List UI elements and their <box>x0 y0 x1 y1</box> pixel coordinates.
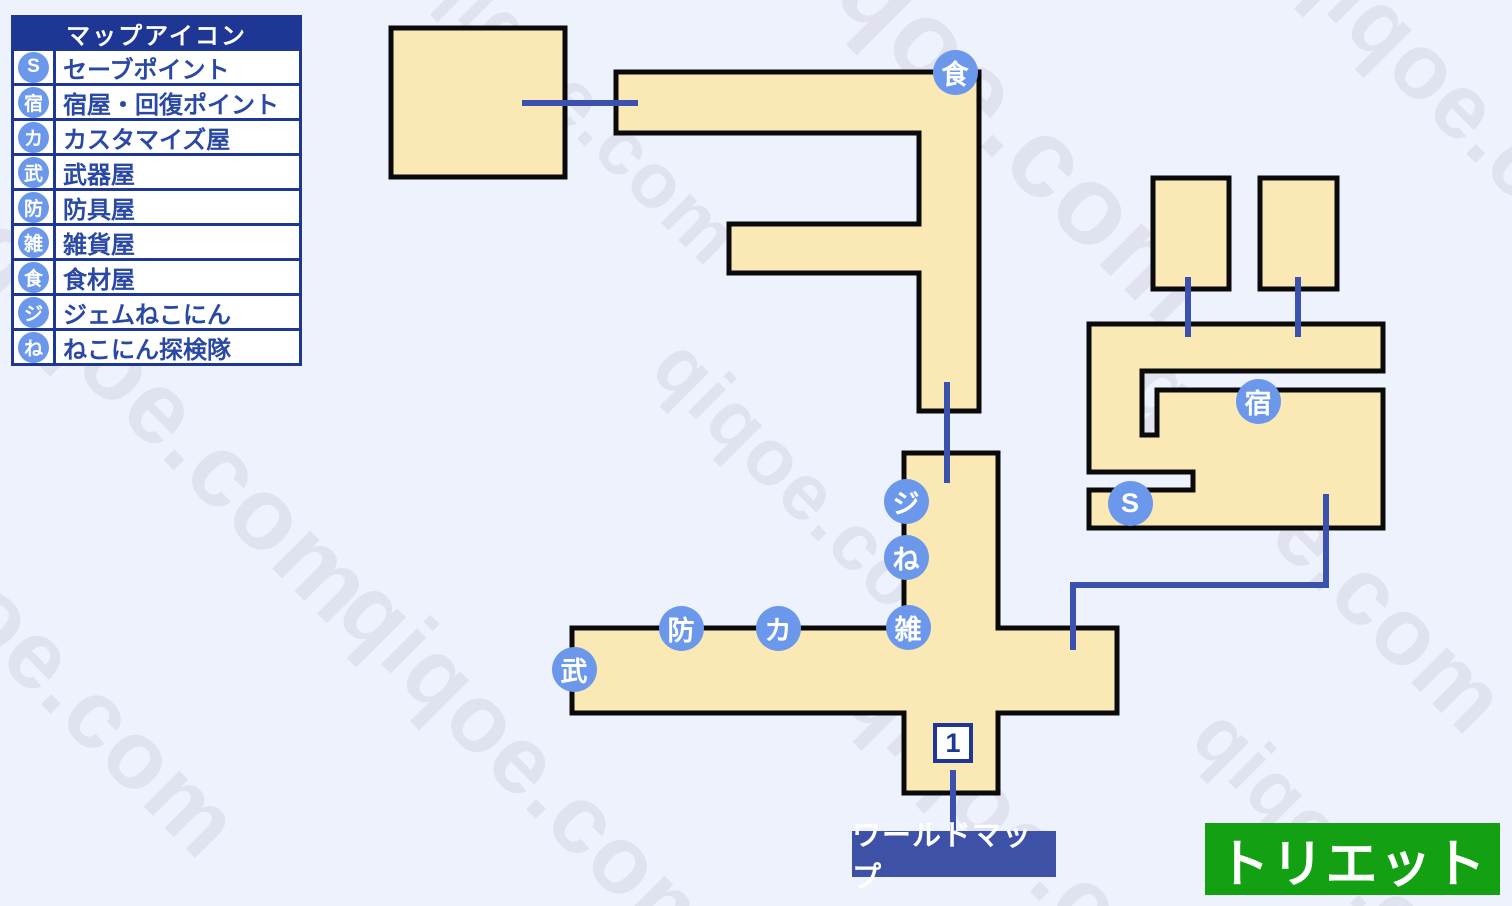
legend-row: ね ねこにん探検隊 <box>14 328 299 363</box>
legend-label: カスタマイズ屋 <box>56 121 299 153</box>
legend-row: 防 防具屋 <box>14 188 299 223</box>
map-marker-food-shop: 食 <box>933 50 978 95</box>
legend-row: 食 食材屋 <box>14 258 299 293</box>
legend-icon-cell: 防 <box>14 191 56 223</box>
legend-label: 武器屋 <box>56 156 299 188</box>
legend-icon-cell: カ <box>14 121 56 153</box>
legend-body: S セーブポイント 宿 宿屋・回復ポイント カ カスタマイズ屋 武 武器屋 防 … <box>14 48 299 363</box>
legend-row: カ カスタマイズ屋 <box>14 118 299 153</box>
map-marker-general-store: 雑 <box>886 605 931 650</box>
corridor-north <box>616 72 979 411</box>
legend-icon-cell: S <box>14 51 56 83</box>
map-marker-customize-shop: カ <box>756 606 801 651</box>
map-marker-gem-nekonin: ジ <box>884 479 929 524</box>
map-marker-save-point: S <box>1108 481 1153 526</box>
legend-label: セーブポイント <box>56 51 299 83</box>
legend-row: 武 武器屋 <box>14 153 299 188</box>
legend-icon-cell: 宿 <box>14 86 56 118</box>
legend-map-icon: 雑 <box>18 227 49 258</box>
legend-map-icon: 武 <box>18 157 49 188</box>
map-icon-legend: マップアイコン S セーブポイント 宿 宿屋・回復ポイント カ カスタマイズ屋 … <box>11 15 302 366</box>
legend-icon-cell: ね <box>14 331 56 363</box>
legend-header: マップアイコン <box>14 18 299 48</box>
legend-label: 宿屋・回復ポイント <box>56 86 299 118</box>
legend-map-icon: 防 <box>18 192 49 223</box>
map-marker-inn: 宿 <box>1236 379 1281 424</box>
map-marker-nekonin-squad: ね <box>884 535 929 580</box>
legend-row: ジ ジェムねこにん <box>14 293 299 328</box>
legend-map-icon: 宿 <box>18 87 49 118</box>
legend-map-icon: S <box>18 52 49 83</box>
map-marker-weapon-shop: 武 <box>552 647 597 692</box>
legend-label: 雑貨屋 <box>56 226 299 258</box>
legend-map-icon: ジ <box>18 297 49 328</box>
exit-marker-1: 1 <box>933 723 973 763</box>
corridor-main-cross <box>572 453 1117 793</box>
legend-row: 雑 雑貨屋 <box>14 223 299 258</box>
page-title: トリエット <box>1205 823 1500 895</box>
map-marker-armor-shop: 防 <box>659 606 704 651</box>
legend-icon-cell: 雑 <box>14 226 56 258</box>
legend-icon-cell: 武 <box>14 156 56 188</box>
legend-map-icon: カ <box>18 122 49 153</box>
legend-icon-cell: ジ <box>14 296 56 328</box>
legend-map-icon: 食 <box>18 262 49 293</box>
legend-label: ジェムねこにん <box>56 296 299 328</box>
small-room-left <box>1153 178 1229 289</box>
legend-map-icon: ね <box>18 332 49 363</box>
legend-row: 宿 宿屋・回復ポイント <box>14 83 299 118</box>
world-map-label: ワールドマップ <box>852 831 1056 877</box>
legend-label: ねこにん探検隊 <box>56 331 299 363</box>
legend-icon-cell: 食 <box>14 261 56 293</box>
legend-row: S セーブポイント <box>14 48 299 83</box>
legend-label: 食材屋 <box>56 261 299 293</box>
legend-label: 防具屋 <box>56 191 299 223</box>
town-map-page: qiqoe.com qiqoe.com qiqoe.com qiqoe.com … <box>0 0 1512 906</box>
small-room-right <box>1260 178 1337 289</box>
